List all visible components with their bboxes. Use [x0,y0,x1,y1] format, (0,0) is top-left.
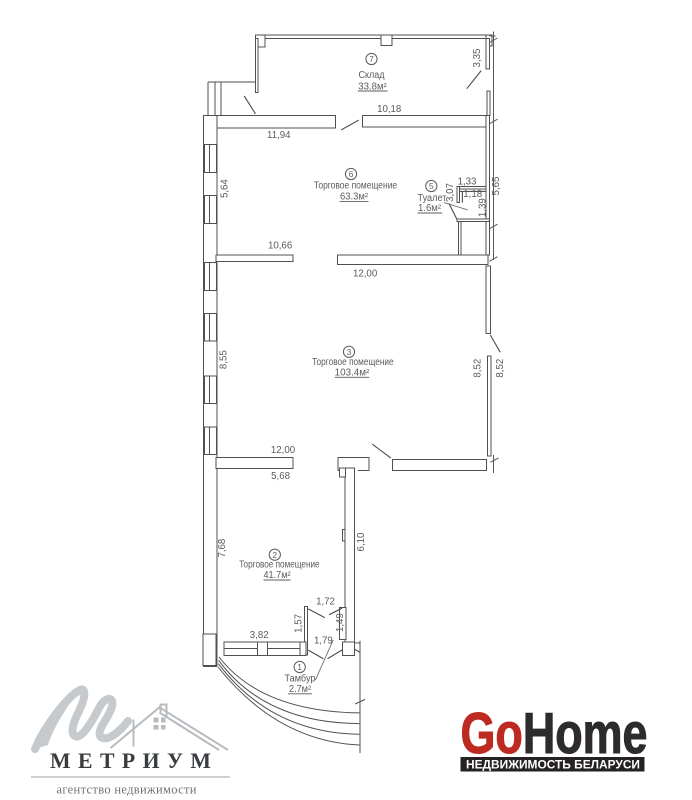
svg-text:3,82: 3,82 [250,630,269,641]
svg-text:НЕДВИЖИМОСТЬ БЕЛАРУСИ: НЕДВИЖИМОСТЬ БЕЛАРУСИ [466,758,640,772]
svg-text:7: 7 [369,55,374,64]
svg-text:Торговое помещение: Торговое помещение [314,181,397,192]
svg-text:3: 3 [347,348,352,357]
svg-text:12,00: 12,00 [353,269,378,280]
svg-text:Торговое помещение: Торговое помещение [312,357,394,368]
svg-text:Склад: Склад [359,70,385,81]
svg-text:агентство недвижимости: агентство недвижимости [57,783,197,797]
svg-text:11,94: 11,94 [267,130,291,141]
svg-text:8,55: 8,55 [218,350,229,369]
svg-text:5: 5 [429,182,434,191]
svg-text:10,66: 10,66 [268,240,292,251]
svg-text:12,00: 12,00 [271,445,296,456]
svg-text:5,65: 5,65 [491,177,502,196]
svg-text:1,79: 1,79 [314,636,333,647]
svg-text:7,68: 7,68 [217,539,228,558]
svg-text:5,68: 5,68 [271,471,290,482]
svg-text:1,33: 1,33 [458,177,477,188]
svg-text:1,39: 1,39 [478,198,489,217]
svg-text:Туалет: Туалет [418,193,448,204]
svg-text:МЕТРИУМ: МЕТРИУМ [50,749,211,773]
svg-text:Торговое помещение: Торговое помещение [239,560,319,571]
svg-text:3,07: 3,07 [445,183,456,202]
svg-text:3,35: 3,35 [472,49,483,68]
svg-text:GoHome: GoHome [461,702,648,766]
svg-text:8,52: 8,52 [473,359,484,378]
svg-text:6: 6 [349,170,354,179]
svg-text:6,10: 6,10 [356,532,367,551]
svg-text:10,18: 10,18 [377,104,401,115]
svg-text:1: 1 [297,663,302,672]
svg-text:5,64: 5,64 [220,179,231,198]
svg-text:1,57: 1,57 [293,614,304,633]
svg-text:1,72: 1,72 [316,597,335,608]
svg-text:8,52: 8,52 [495,359,506,378]
svg-text:1,49: 1,49 [335,613,346,632]
